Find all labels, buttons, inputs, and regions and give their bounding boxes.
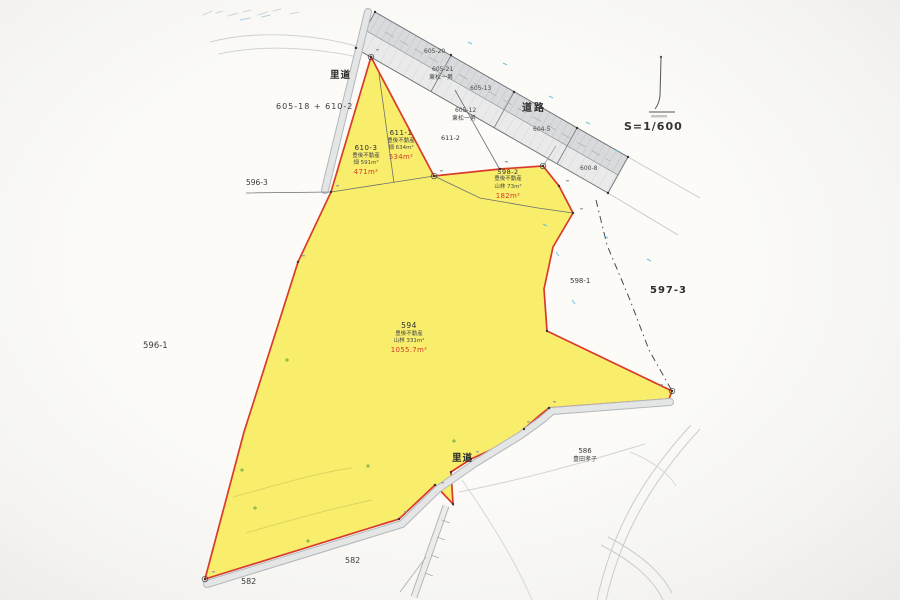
parcel-594-shape — [205, 57, 672, 579]
parcel-611-1-id: 611-1 — [387, 129, 415, 138]
parcel-594-owner: 豊後不動産 — [391, 331, 428, 338]
parcel-610-3-id: 610-3 — [352, 144, 380, 153]
road-label: 道路 — [522, 103, 546, 116]
neighbor-596-3-label: 596-3 — [246, 178, 268, 187]
road-parcel-605-12-owner-label: 東松一男 — [452, 115, 476, 123]
road-parcel-605-13-label: 605-13 — [470, 85, 491, 93]
parcel-598-2-measured: 182m² — [494, 192, 522, 201]
contour-lines — [203, 9, 358, 57]
parcel-598-2-registered: 山林 73m² — [494, 184, 522, 191]
satomichi-top-label: 里道 — [330, 70, 351, 82]
parcel-594-measured: 1055.7m² — [391, 346, 428, 355]
parcel-610-3-registered: 畑 591m² — [352, 160, 380, 167]
road-parcel-604-5-label: 604-5 — [533, 126, 550, 134]
road-parcel-605-21-label: 605-21 — [432, 66, 453, 74]
parcel-611-1-registered: 畑 634m² — [387, 145, 415, 152]
cadastral-map-sheet: 里道 605-18 + 610-2 道路 605-20 605-21 東松一男 … — [0, 0, 900, 600]
neighbor-611-2-label: 611-2 — [441, 134, 460, 142]
neighbor-586-owner-label: 豊田孝子 — [573, 456, 597, 464]
scale-label: S=1/600 — [624, 120, 683, 134]
neighbor-582-right-label: 582 — [345, 556, 360, 566]
parcel-610-3-label: 610-3 豊後不動産 畑 591m² 471m² — [352, 144, 380, 177]
road-parcel-605-12-label: 605-12 — [455, 107, 476, 115]
road-parcel-605-21-owner-label: 東松一男 — [429, 74, 453, 82]
parcel-594-label: 594 豊後不動産 山林 331m² 1055.7m² — [391, 321, 428, 355]
road-parcel-600-8-label: 600-8 — [580, 165, 597, 173]
parcel-610-3-measured: 471m² — [352, 168, 380, 177]
satomichi-bottom-label: 里道 — [452, 453, 473, 465]
cadastral-drawing — [0, 0, 900, 600]
road-parcel-605-20-label: 605-20 — [424, 48, 445, 56]
neighbor-605-18-label: 605-18 + 610-2 — [276, 102, 353, 112]
parcel-598-2-owner: 豊後不動産 — [494, 176, 522, 183]
neighbor-598-1-label: 598-1 — [570, 277, 590, 286]
north-arrow — [649, 56, 675, 118]
neighbor-586-label: 586 — [578, 447, 591, 456]
parcel-594-id: 594 — [391, 321, 428, 331]
parcel-611-1-label: 611-1 豊後不動産 畑 634m² 534m² — [387, 129, 415, 162]
parcel-611-1-measured: 534m² — [387, 153, 415, 162]
neighbor-596-1-label: 596-1 — [143, 341, 168, 352]
neighbor-582-left-label: 582 — [241, 577, 256, 587]
parcel-598-2-label: 598-2 豊後不動産 山林 73m² 182m² — [494, 168, 522, 201]
parcel-594-registered: 山林 331m² — [391, 338, 428, 345]
neighbor-597-3-label: 597-3 — [650, 285, 687, 298]
